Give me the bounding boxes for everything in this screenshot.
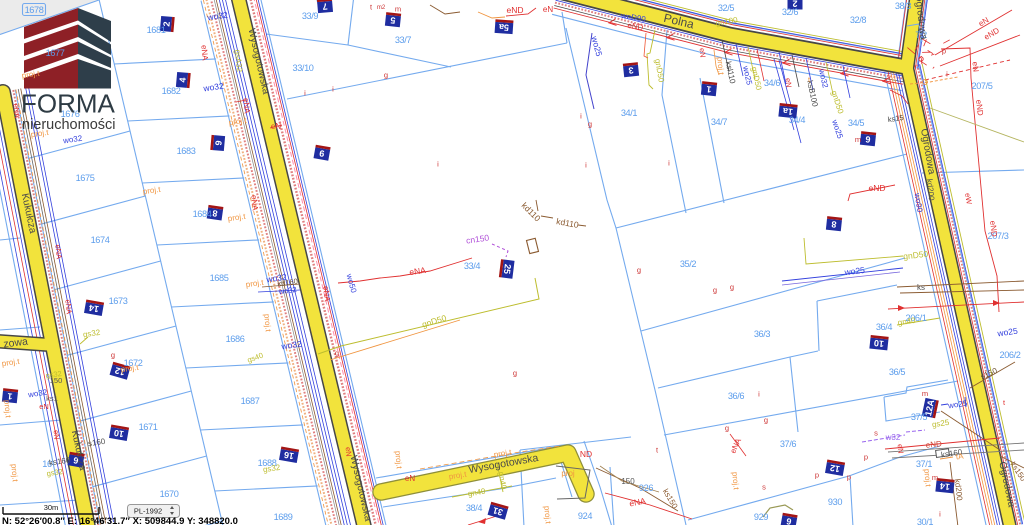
svg-text:35/2: 35/2 — [680, 259, 697, 269]
svg-text:eN: eN — [543, 5, 553, 14]
svg-text:PL-1992: PL-1992 — [134, 507, 162, 516]
svg-text:37/6: 37/6 — [780, 439, 797, 449]
svg-text:proj.t: proj.t — [393, 451, 404, 470]
svg-text:eND: eND — [506, 5, 523, 15]
svg-text:w32: w32 — [885, 433, 901, 442]
svg-text:N: 52°26′00.8″ E: 16°46′31.7″: N: 52°26′00.8″ E: 16°46′31.7″ X: 509844.… — [2, 516, 238, 525]
svg-text:eN: eN — [896, 444, 906, 454]
svg-text:m2: m2 — [377, 5, 386, 11]
svg-text:eNA: eNA — [249, 195, 259, 212]
svg-text:926: 926 — [639, 483, 653, 493]
svg-text:32/6: 32/6 — [782, 7, 799, 17]
svg-text:proj.t: proj.t — [730, 472, 741, 491]
svg-text:1686: 1686 — [226, 334, 245, 344]
svg-text:g: g — [713, 286, 717, 295]
svg-text:8: 8 — [831, 219, 837, 229]
svg-text:p: p — [815, 471, 819, 480]
svg-text:FORMA: FORMA — [21, 89, 116, 119]
svg-text:30/1: 30/1 — [917, 517, 934, 525]
svg-text:g: g — [384, 71, 388, 80]
svg-text:eN: eN — [784, 78, 794, 88]
svg-text:16: 16 — [283, 450, 295, 462]
svg-text:ks: ks — [917, 283, 925, 292]
svg-text:nieruchomości: nieruchomości — [22, 117, 116, 133]
svg-text:1689: 1689 — [274, 512, 293, 522]
svg-text:eN: eN — [271, 122, 281, 131]
svg-text:1678: 1678 — [25, 5, 44, 15]
svg-text:34/7: 34/7 — [711, 117, 728, 127]
svg-text:eNA: eNA — [241, 98, 251, 115]
svg-text:proj.t: proj.t — [9, 464, 20, 483]
svg-text:30m: 30m — [44, 503, 59, 512]
svg-text:33/7: 33/7 — [395, 35, 412, 45]
svg-text:proj.t: proj.t — [2, 400, 13, 419]
svg-text:ks1: ks1 — [46, 394, 58, 403]
svg-text:1682: 1682 — [162, 86, 181, 96]
svg-text:6: 6 — [213, 140, 223, 146]
svg-text:38/4: 38/4 — [466, 503, 483, 513]
svg-text:206/2: 206/2 — [1000, 350, 1021, 360]
svg-text:1677: 1677 — [46, 48, 65, 58]
svg-text:14: 14 — [939, 481, 950, 492]
svg-text:10: 10 — [873, 338, 884, 349]
svg-text:36/6: 36/6 — [728, 391, 745, 401]
svg-text:eNA: eNA — [199, 45, 209, 62]
svg-text:25: 25 — [502, 263, 513, 274]
svg-text:33/10: 33/10 — [293, 63, 314, 73]
svg-text:36/3: 36/3 — [754, 329, 771, 339]
svg-text:3: 3 — [628, 65, 634, 75]
svg-text:ND: ND — [580, 449, 592, 459]
svg-text:1684: 1684 — [193, 209, 212, 219]
svg-text:37/1: 37/1 — [916, 459, 933, 469]
svg-text:1671: 1671 — [139, 422, 158, 432]
svg-text:g: g — [637, 266, 641, 275]
svg-text:14: 14 — [88, 303, 100, 315]
svg-text:38/3: 38/3 — [895, 1, 912, 11]
svg-text:m: m — [922, 389, 928, 398]
svg-text:s: s — [874, 429, 878, 438]
svg-text:1687: 1687 — [241, 396, 260, 406]
svg-text:1673: 1673 — [109, 296, 128, 306]
svg-text:proj: proj — [561, 469, 575, 478]
svg-text:1683: 1683 — [177, 146, 196, 156]
svg-text:g: g — [513, 369, 517, 378]
svg-text:proj.t: proj.t — [715, 57, 726, 76]
svg-text:s: s — [762, 483, 766, 492]
svg-text:930: 930 — [828, 497, 842, 507]
svg-text:6: 6 — [865, 134, 871, 144]
svg-text:32/5: 32/5 — [718, 3, 735, 13]
svg-text:1674: 1674 — [91, 235, 110, 245]
svg-text:proj.t: proj.t — [262, 314, 273, 333]
svg-text:34/5: 34/5 — [848, 118, 865, 128]
svg-text:g: g — [725, 424, 729, 433]
svg-text:eN: eN — [405, 474, 415, 483]
svg-text:eN: eN — [971, 61, 981, 72]
svg-text:1685: 1685 — [210, 273, 229, 283]
svg-text:5: 5 — [390, 15, 396, 25]
svg-text:32/8: 32/8 — [850, 15, 867, 25]
svg-text:36/4: 36/4 — [876, 322, 893, 332]
svg-text:p: p — [847, 473, 851, 482]
svg-text:33/9: 33/9 — [302, 11, 319, 21]
svg-text:eND: eND — [925, 439, 942, 449]
svg-text:eN: eN — [39, 402, 49, 411]
svg-text:g: g — [730, 283, 734, 292]
svg-text:g: g — [764, 416, 768, 425]
svg-text:g: g — [588, 120, 592, 129]
svg-text:34/6: 34/6 — [764, 78, 781, 88]
svg-text:34/4: 34/4 — [789, 115, 806, 125]
svg-text:eNA: eNA — [53, 244, 63, 259]
svg-text:m: m — [855, 135, 861, 144]
svg-text:proj.t: proj.t — [542, 506, 553, 525]
svg-text:5a: 5a — [498, 22, 510, 33]
svg-text:924: 924 — [578, 511, 592, 521]
svg-text:eNA: eNA — [63, 299, 73, 314]
svg-text:207/5: 207/5 — [972, 81, 993, 91]
svg-text:g: g — [111, 351, 115, 360]
svg-text:37/5: 37/5 — [911, 412, 928, 422]
svg-text:g: g — [335, 349, 339, 358]
svg-text:150: 150 — [621, 477, 635, 486]
svg-text:m: m — [932, 473, 938, 482]
svg-text:eN: eN — [698, 48, 708, 58]
svg-text:36/5: 36/5 — [889, 367, 906, 377]
svg-text:7: 7 — [322, 1, 328, 11]
svg-text:1675: 1675 — [76, 173, 95, 183]
svg-text:10: 10 — [113, 428, 125, 440]
svg-text:eN: eN — [52, 430, 62, 440]
svg-text:34/1: 34/1 — [621, 108, 638, 118]
svg-text:1: 1 — [706, 84, 712, 94]
svg-text:12: 12 — [829, 463, 841, 475]
svg-text:p: p — [942, 47, 946, 56]
svg-text:1670: 1670 — [160, 489, 179, 499]
svg-text:33/4: 33/4 — [464, 261, 481, 271]
svg-text:929: 929 — [754, 512, 768, 522]
svg-text:m: m — [395, 5, 401, 14]
svg-text:4: 4 — [177, 77, 187, 83]
svg-text:eNA: eNA — [321, 286, 331, 303]
svg-text:1681: 1681 — [147, 25, 166, 35]
svg-text:150: 150 — [50, 376, 63, 385]
svg-text:eND: eND — [868, 183, 885, 193]
svg-text:p: p — [864, 453, 868, 462]
